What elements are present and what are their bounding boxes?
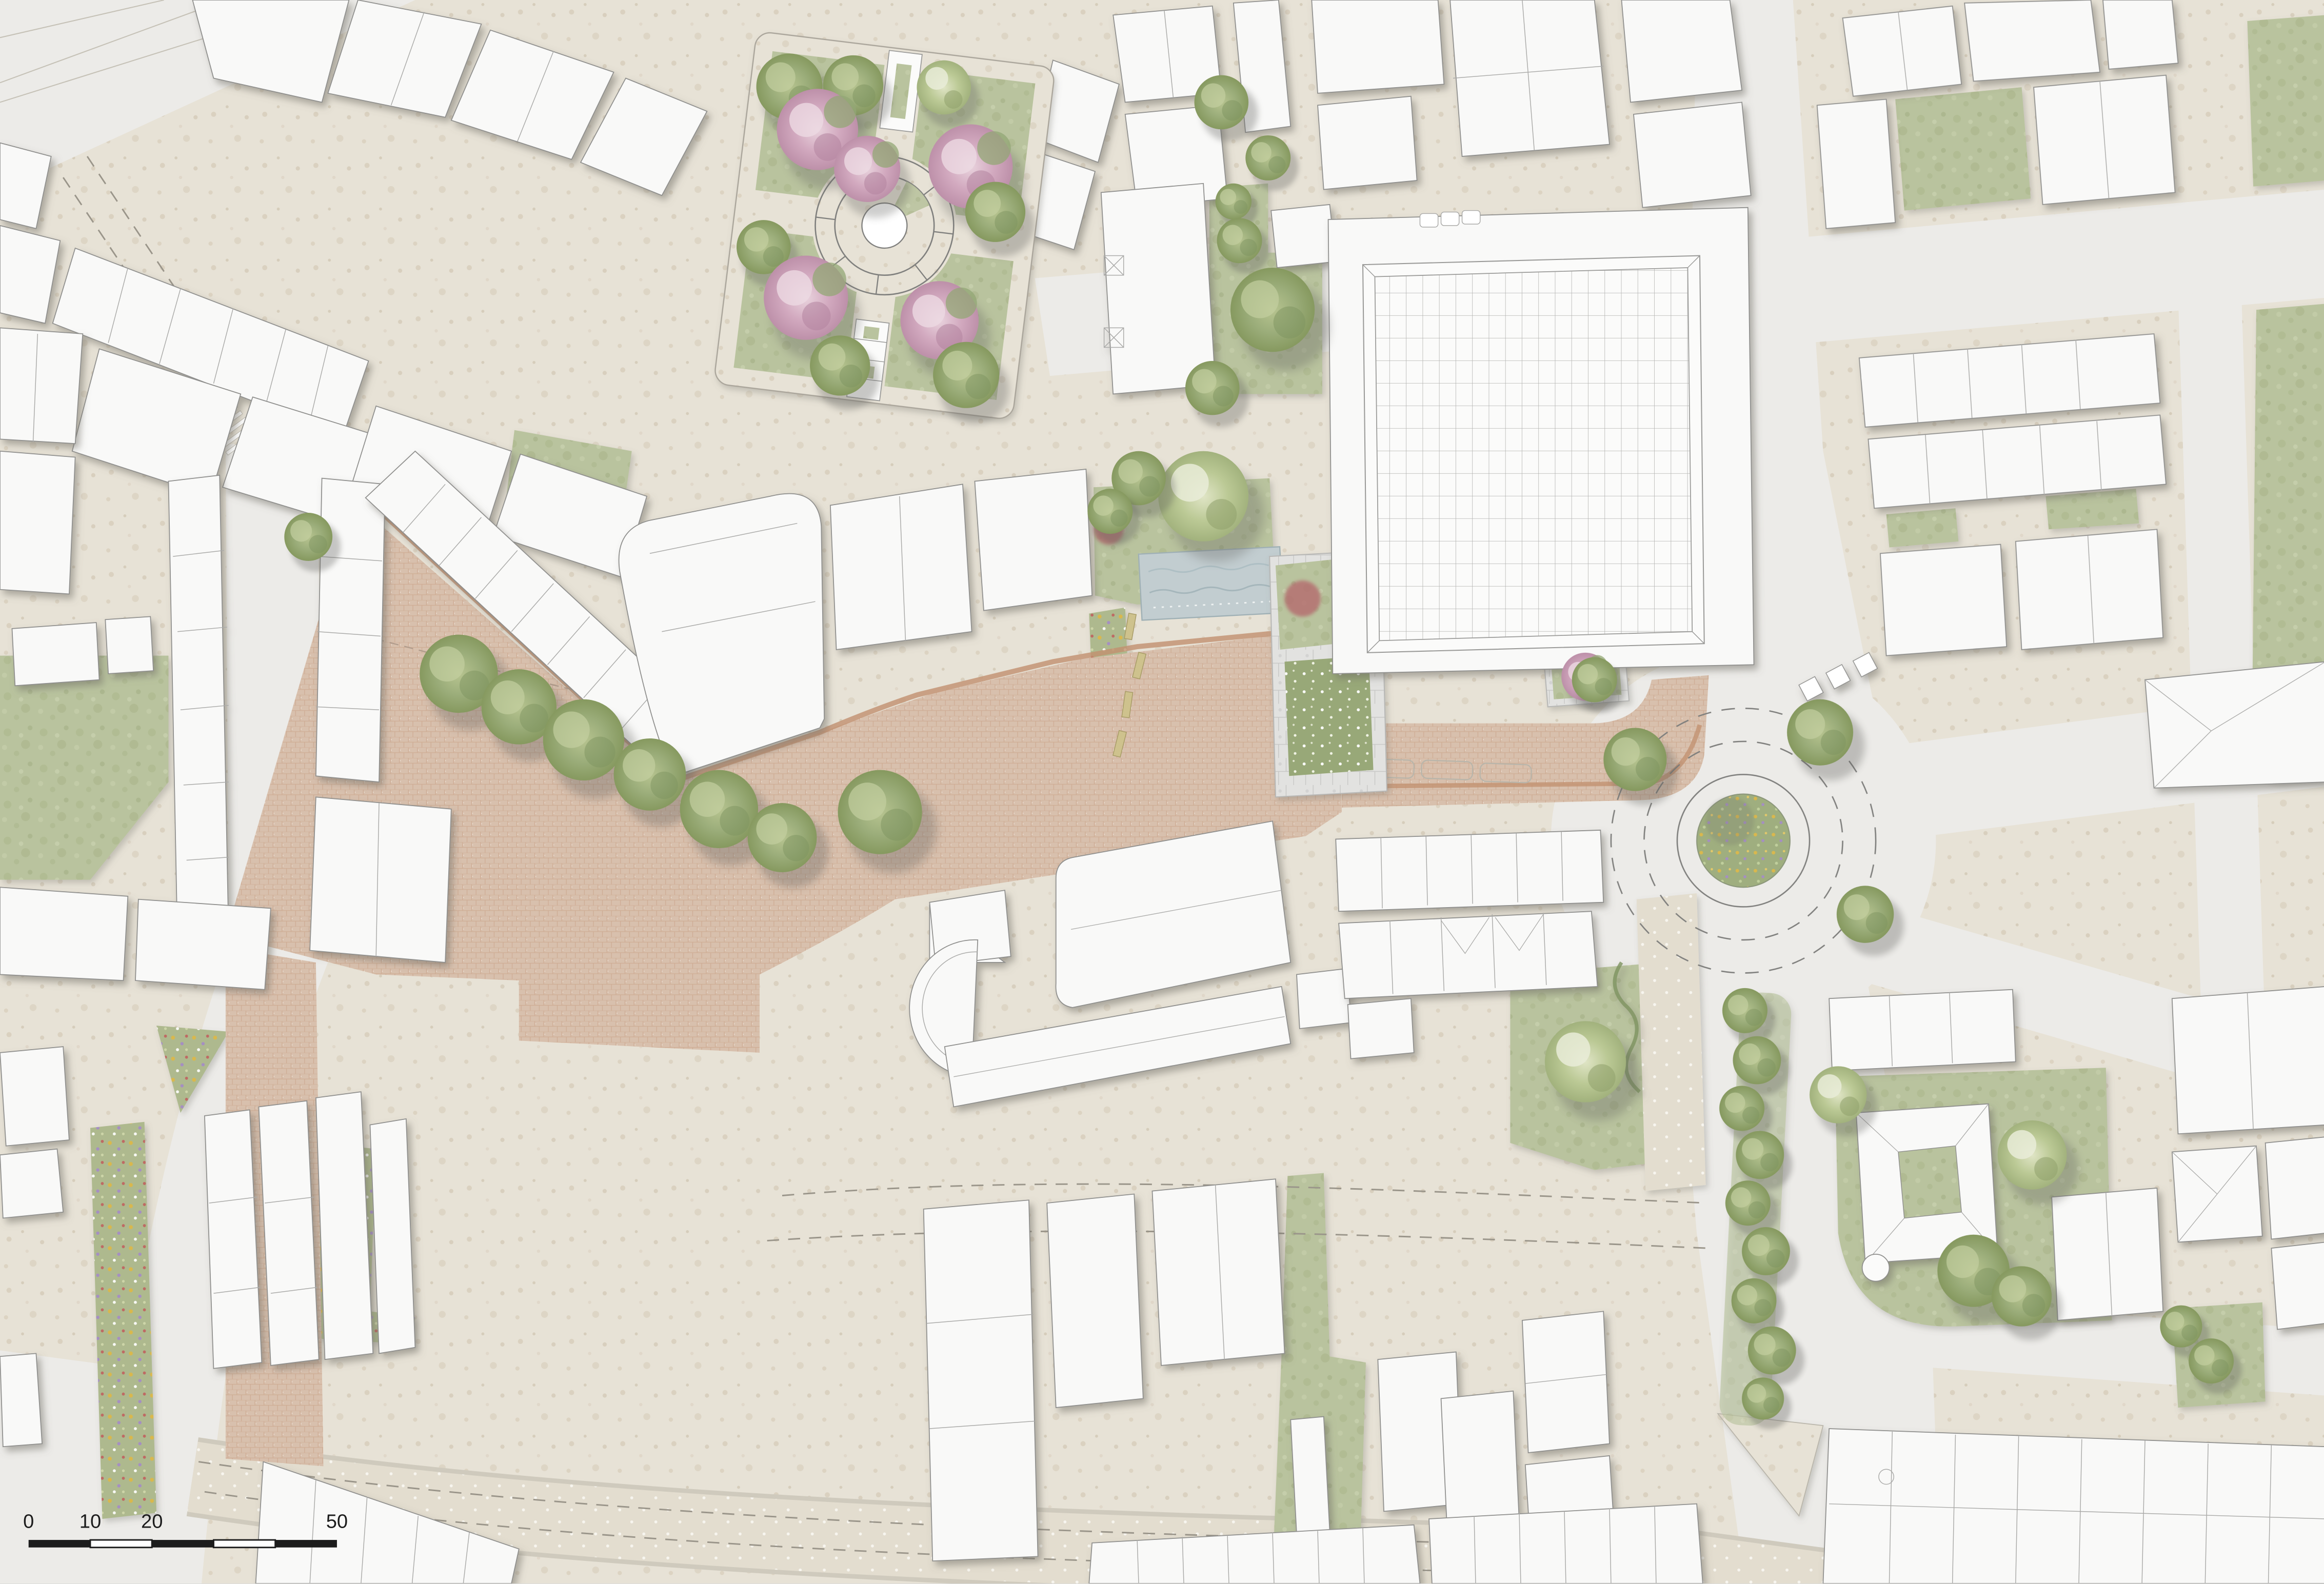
walkway-dotted (1637, 893, 1706, 1191)
green-block-far-right-1 (2247, 15, 2324, 186)
building (2103, 0, 2178, 69)
building (0, 1047, 69, 1146)
site-plan-canvas: 0 10 20 50 (0, 0, 2324, 1583)
building (0, 451, 75, 594)
building (1441, 1391, 1519, 1528)
scale-label-10: 10 (80, 1511, 101, 1533)
building (1964, 0, 2100, 81)
building (1634, 102, 1751, 207)
building (1348, 998, 1414, 1058)
building (2052, 1188, 2163, 1320)
building (105, 616, 153, 673)
building (1880, 545, 2007, 656)
building (0, 1353, 42, 1447)
scale-segment-open (213, 1540, 275, 1548)
canopy-shadow (1706, 797, 1754, 845)
building-row (1339, 911, 1597, 998)
building (1290, 1417, 1329, 1534)
site-plan-sheet: 0 10 20 50 (0, 0, 2324, 1583)
scale-label-0: 0 (23, 1511, 34, 1533)
building (0, 328, 83, 444)
building (1522, 1311, 1610, 1453)
building (1152, 1179, 1284, 1366)
building (2271, 1242, 2324, 1329)
market-hall (1328, 208, 1754, 674)
building (1450, 0, 1610, 156)
building (1271, 205, 1336, 268)
building (12, 623, 99, 686)
scale-segment-filled (275, 1540, 337, 1548)
building (1047, 1194, 1143, 1408)
castle-courtyard (1898, 1146, 1961, 1218)
building (1621, 0, 1742, 102)
building (1843, 6, 1962, 96)
scale-segment-filled (29, 1540, 90, 1548)
red-shrub-icon (1285, 580, 1321, 616)
building (1312, 0, 1444, 93)
building (924, 1200, 1038, 1561)
gridded-roof (1363, 256, 1704, 653)
building (0, 1149, 63, 1218)
building (2016, 529, 2163, 650)
building (1101, 184, 1216, 394)
round-tower (1862, 1254, 1890, 1281)
building (2145, 661, 2324, 788)
scale-label-20: 20 (141, 1511, 163, 1533)
building (0, 887, 128, 980)
scale-segment-open (90, 1540, 152, 1548)
building (1318, 96, 1417, 190)
green-patch-ne-1 (1886, 508, 1959, 547)
green-court-northeast (1895, 87, 2031, 210)
building (2266, 1137, 2324, 1239)
building (135, 899, 271, 990)
building (1817, 99, 1895, 229)
scale-label-50: 50 (326, 1511, 348, 1533)
building (310, 797, 451, 963)
building (830, 484, 972, 650)
building (975, 469, 1092, 611)
planter-green-2 (1285, 656, 1374, 776)
garden-square (712, 31, 1056, 431)
building-row (1336, 830, 1603, 911)
building-row (1829, 990, 2016, 1071)
scale-segment-filled (152, 1540, 213, 1548)
